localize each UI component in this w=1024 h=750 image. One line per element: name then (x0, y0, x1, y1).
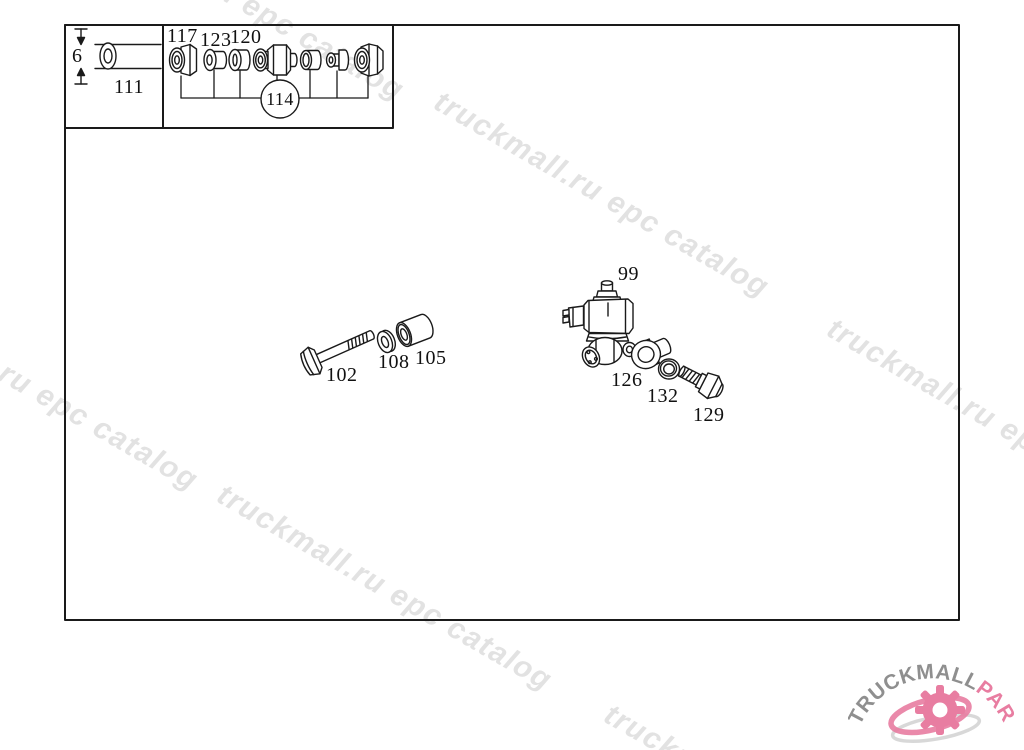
part-label-123: 123 (200, 30, 232, 50)
dimension-label-6: 6 (72, 46, 83, 66)
bushing-111-drawing (95, 43, 161, 69)
part-label-111: 111 (114, 77, 144, 97)
spacer-105-drawing (393, 312, 436, 348)
union-fitting-drawing (254, 45, 298, 75)
part-label-102: 102 (326, 365, 358, 385)
plug-129-drawing (674, 359, 727, 402)
part-label-99: 99 (618, 264, 639, 284)
sleeve-plain-drawing (301, 51, 322, 70)
part-label-117: 117 (167, 26, 198, 46)
valve-99-drawing (563, 281, 636, 370)
gear-icon (915, 685, 965, 735)
part-label-108: 108 (378, 352, 410, 372)
part-label-126: 126 (611, 370, 643, 390)
small-fitting-drawing (327, 50, 349, 70)
brand-logo: TRUCKMALLPARTS (848, 648, 1024, 750)
seal-132-drawing (659, 359, 680, 379)
part-label-114: 114 (260, 90, 300, 108)
parts-diagram (0, 0, 1024, 750)
sleeve-123-drawing (204, 50, 227, 71)
nut-117-drawing (170, 45, 197, 76)
diagram-frame (65, 25, 959, 620)
part-label-105: 105 (415, 348, 447, 368)
nut-right-drawing (355, 44, 384, 76)
catalog-page: truckmall.ru epc catalog truckmall.ru ep… (0, 0, 1024, 750)
part-label-120: 120 (230, 27, 262, 47)
part-label-132: 132 (647, 386, 679, 406)
part-label-129: 129 (693, 405, 725, 425)
washer-120-drawing (229, 50, 250, 71)
